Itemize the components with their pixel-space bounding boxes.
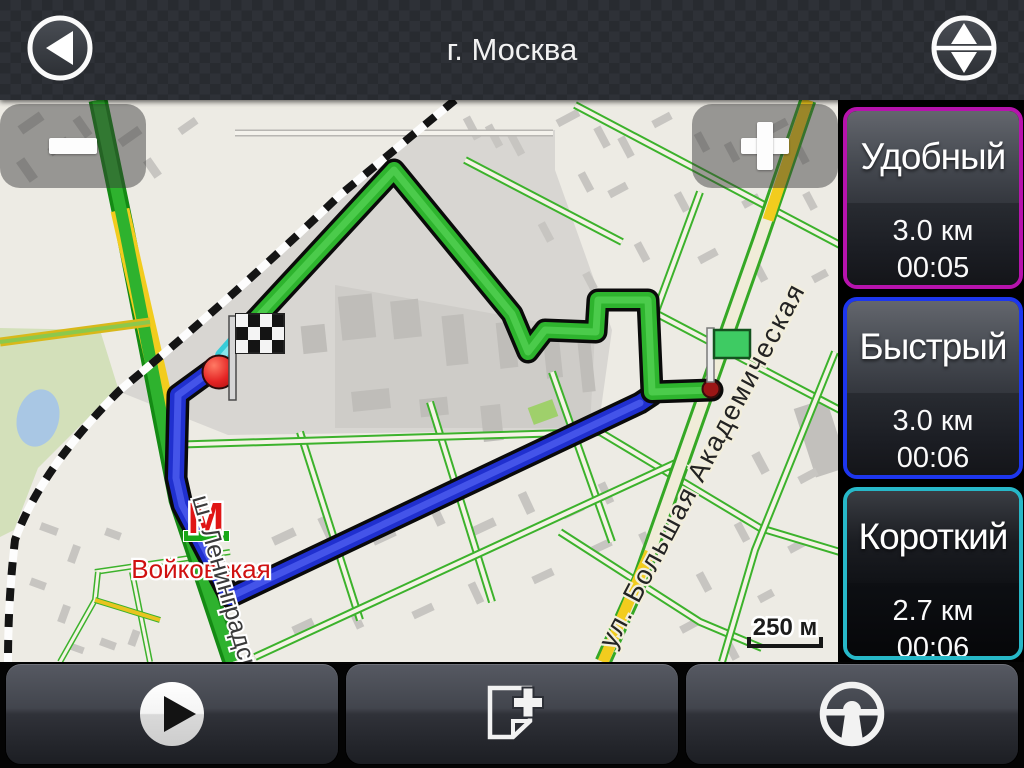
zoom-out-button[interactable]: [0, 104, 146, 188]
route-name: Быстрый: [847, 301, 1019, 393]
back-button[interactable]: [26, 14, 94, 82]
route-duration: 00:06: [847, 630, 1019, 660]
bottom-toolbar: [0, 662, 1024, 768]
route-name: Короткий: [847, 491, 1019, 583]
reorder-routes-button[interactable]: [930, 14, 998, 82]
add-waypoint-icon: [346, 664, 678, 764]
top-bar: г. Москва: [0, 0, 1024, 100]
route-duration: 00:06: [847, 440, 1019, 477]
back-arrow-icon: [26, 14, 94, 82]
scale-label: 250 м: [753, 614, 817, 641]
play-icon: [6, 664, 338, 764]
route-distance: 2.7 км: [847, 593, 1019, 630]
page-title: г. Москва: [0, 0, 1024, 100]
drive-mode-button[interactable]: [686, 664, 1018, 764]
route-duration: 00:05: [847, 250, 1019, 287]
add-waypoint-button[interactable]: [346, 664, 678, 764]
route-distance: 3.0 км: [847, 213, 1019, 250]
start-navigation-button[interactable]: [6, 664, 338, 764]
map-view[interactable]: М Войковская ш. Ленинградское ул. Больша…: [0, 100, 838, 662]
station-name-label: Войковская: [131, 554, 270, 584]
navigation-app-screen: г. Москва: [0, 0, 1024, 768]
steering-wheel-icon: [686, 664, 1018, 764]
reorder-routes-icon: [930, 14, 998, 82]
route-options-panel: Удобный 3.0 км 00:05 Быстрый 3.0 км 00:0…: [838, 100, 1024, 662]
route-card-comfortable[interactable]: Удобный 3.0 км 00:05: [843, 107, 1023, 289]
route-card-short[interactable]: Короткий 2.7 км 00:06: [843, 487, 1023, 660]
route-card-fast[interactable]: Быстрый 3.0 км 00:06: [843, 297, 1023, 479]
minus-icon: [49, 138, 97, 154]
route-distance: 3.0 км: [847, 403, 1019, 440]
route-name: Удобный: [847, 111, 1019, 203]
checkered-flag-icon: [236, 314, 284, 353]
zoom-in-button[interactable]: [692, 104, 838, 188]
